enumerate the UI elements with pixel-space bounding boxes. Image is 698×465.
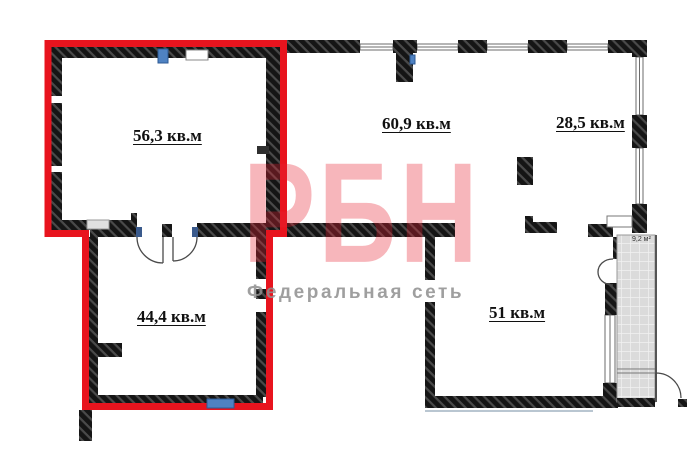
wall-notch xyxy=(256,279,267,289)
wall-segment xyxy=(425,396,605,408)
wall-segment xyxy=(266,47,281,233)
window xyxy=(636,57,643,115)
wall-segment xyxy=(256,237,267,397)
room-area-label-56-3: 56,3 кв.м xyxy=(133,126,202,146)
radiator-marker xyxy=(158,49,168,63)
wall-segment xyxy=(528,40,567,53)
wall-segment xyxy=(393,40,417,53)
wall-segment xyxy=(88,237,98,397)
niche-marker xyxy=(87,220,109,229)
door-jamb-marker xyxy=(136,227,142,237)
niche-marker xyxy=(186,50,208,60)
wall-segment xyxy=(90,230,137,237)
window xyxy=(567,44,608,50)
wall-segment xyxy=(632,115,647,148)
wall-segment xyxy=(603,383,618,408)
wall-segment xyxy=(678,399,687,407)
wall-segment xyxy=(51,47,62,233)
wall-notch xyxy=(256,299,267,312)
niche-marker xyxy=(257,146,269,154)
window xyxy=(605,315,615,383)
wall-segment xyxy=(290,223,455,237)
window xyxy=(360,44,393,50)
wall-segment xyxy=(632,204,647,233)
column xyxy=(517,157,533,185)
room-area-label-44-4: 44,4 кв.м xyxy=(137,307,206,327)
wall-segment xyxy=(425,302,435,396)
wall-segment xyxy=(88,343,122,357)
wall-segment xyxy=(425,237,435,280)
window xyxy=(487,44,528,50)
floor-plan-drawing xyxy=(0,0,698,465)
wall-segment xyxy=(525,216,533,223)
wall-notch xyxy=(51,166,62,172)
wall-segment xyxy=(525,222,557,233)
radiator-marker xyxy=(207,399,234,408)
room-area-label-28-5: 28,5 кв.м xyxy=(556,113,625,133)
floor-plan: РБН Федеральная сеть 56,3 кв.м 60,9 кв.м… xyxy=(0,0,698,465)
wall-segment xyxy=(632,40,647,57)
wall-notch xyxy=(51,96,62,103)
wall-segment xyxy=(131,213,137,225)
balcony-area-label: 9,2 м² xyxy=(632,236,651,243)
wall-segment xyxy=(287,40,360,53)
window xyxy=(636,148,643,204)
balcony-tiles xyxy=(617,235,655,402)
room-area-label-51: 51 кв.м xyxy=(489,303,545,323)
window xyxy=(417,44,458,50)
wall-segment xyxy=(617,398,655,407)
wall-segment xyxy=(458,40,487,53)
door-jamb-marker xyxy=(192,227,198,237)
duct-marker xyxy=(607,216,632,227)
wall-segment xyxy=(79,410,92,441)
room-area-label-60-9: 60,9 кв.м xyxy=(382,114,451,134)
wall-segment xyxy=(605,283,618,315)
door-center-post xyxy=(162,224,172,237)
radiator-marker xyxy=(410,55,415,64)
